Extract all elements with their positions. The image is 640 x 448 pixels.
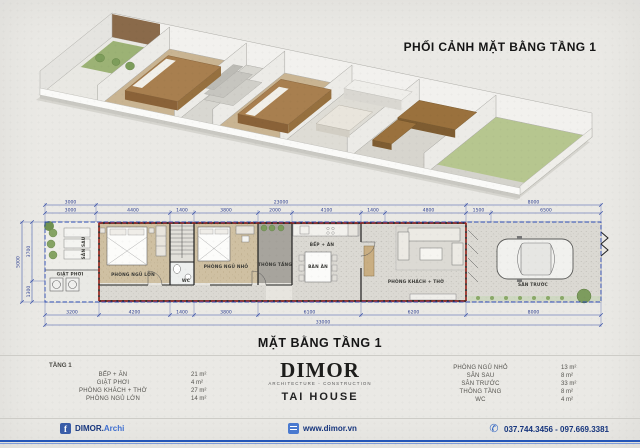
svg-text:WC: WC [182,278,190,284]
svg-text:8000: 8000 [528,199,540,205]
plan-corridor [99,285,266,302]
legend-row: GIẶT PHƠI 4 m² [35,379,235,387]
perspective-view [0,0,640,200]
svg-text:3700: 3700 [26,246,32,258]
svg-text:3200: 3200 [66,310,78,316]
globe-icon [288,423,299,434]
svg-text:1400: 1400 [176,310,188,316]
legend-row: PHÒNG NGỦ NHỎ 13 m² [400,364,605,372]
svg-text:1400: 1400 [367,208,379,214]
legend: TẦNG 1 BẾP + ĂN 21 m² GIẶT PHƠI 4 m² PHÒ… [0,359,640,415]
plan-car [497,236,573,282]
legend-row: SÂN TRƯỚC 33 m² [400,380,605,388]
plan-void-plants [261,225,284,231]
svg-text:3000: 3000 [65,208,77,214]
svg-text:4100: 4100 [321,208,333,214]
website-url: www.dimor.vn [303,424,357,433]
svg-text:SÂN TRƯỚC: SÂN TRƯỚC [518,281,548,288]
legend-floor-label: TẦNG 1 [49,362,235,369]
facebook-icon: f [60,423,71,434]
svg-text:GIẶT PHƠI: GIẶT PHƠI [57,271,84,278]
svg-text:1400: 1400 [176,208,188,214]
legend-divider-top [0,355,640,356]
legend-right-column: PHÒNG NGỦ NHỎ 13 m² SÂN SAU 8 m² SÂN TRƯ… [400,359,605,404]
svg-text:6200: 6200 [408,310,420,316]
legend-row: SÂN SAU 8 m² [400,372,605,380]
footer-blue-line [0,440,640,442]
svg-text:3800: 3800 [220,310,232,316]
presentation-sheet: { "titles": { "perspective": "PHỐI CẢNH … [0,0,640,448]
svg-text:5000: 5000 [16,256,22,268]
svg-text:1300: 1300 [26,286,32,298]
plan-gate-symbol [601,232,608,256]
svg-text:3800: 3800 [220,208,232,214]
project-name: TAI HOUSE [230,391,410,403]
svg-text:BÀN ĂN: BÀN ĂN [308,263,328,270]
legend-row: WC 4 m² [400,396,605,404]
svg-text:8000: 8000 [528,310,540,316]
legend-row: PHÒNG KHÁCH + THỜ 27 m² [35,387,235,395]
svg-text:4400: 4400 [127,208,139,214]
footer: f DIMOR.Archi www.dimor.vn ✆ 037.744.345… [0,421,640,438]
facebook-handle: DIMOR.Archi [75,424,124,433]
svg-text:PHÒNG KHÁCH + THỜ: PHÒNG KHÁCH + THỜ [388,278,444,285]
plan-void [258,222,292,283]
floor-plan-drawing: 3000 23000 8000 3000 4400 1400 3800 2000… [0,195,640,335]
legend-left-column: TẦNG 1 BẾP + ĂN 21 m² GIẶT PHƠI 4 m² PHÒ… [35,359,235,403]
plan-kitchen-counter [293,224,359,236]
footer-blue-line-thin [0,443,640,444]
phone-icon: ✆ [488,423,500,435]
brand-block: DIMOR ARCHITECTURE - CONSTRUCTION TAI HO… [230,359,410,403]
perspective-title: PHỐI CẢNH MẶT BẰNG TẦNG 1 [390,40,610,54]
plan-tree [577,289,591,303]
svg-text:2000: 2000 [269,208,281,214]
phone-numbers: 037.744.3456 - 097.669.3381 [504,425,609,434]
svg-text:23000: 23000 [274,199,289,205]
svg-text:6500: 6500 [540,208,552,214]
brand-tagline: ARCHITECTURE - CONSTRUCTION [230,381,410,386]
legend-row: THÔNG TẦNG 8 m² [400,388,605,396]
footer-phones: ✆ 037.744.3456 - 097.669.3381 [488,423,609,435]
legend-row: PHÒNG NGỦ LỚN 14 m² [35,395,235,403]
footer-facebook: f DIMOR.Archi [60,423,124,434]
legend-row: BẾP + ĂN 21 m² [35,371,235,379]
footer-divider [0,418,640,419]
svg-text:SÂN SAU: SÂN SAU [80,236,87,259]
svg-text:4800: 4800 [423,208,435,214]
svg-text:4200: 4200 [129,310,141,316]
svg-text:33000: 33000 [316,320,331,326]
svg-text:1500: 1500 [473,208,485,214]
footer-website: www.dimor.vn [288,423,357,434]
svg-text:3000: 3000 [65,199,77,205]
svg-text:6100: 6100 [304,310,316,316]
plan-title: MẶT BẰNG TẦNG 1 [0,336,640,350]
brand-name: DIMOR [230,359,410,381]
